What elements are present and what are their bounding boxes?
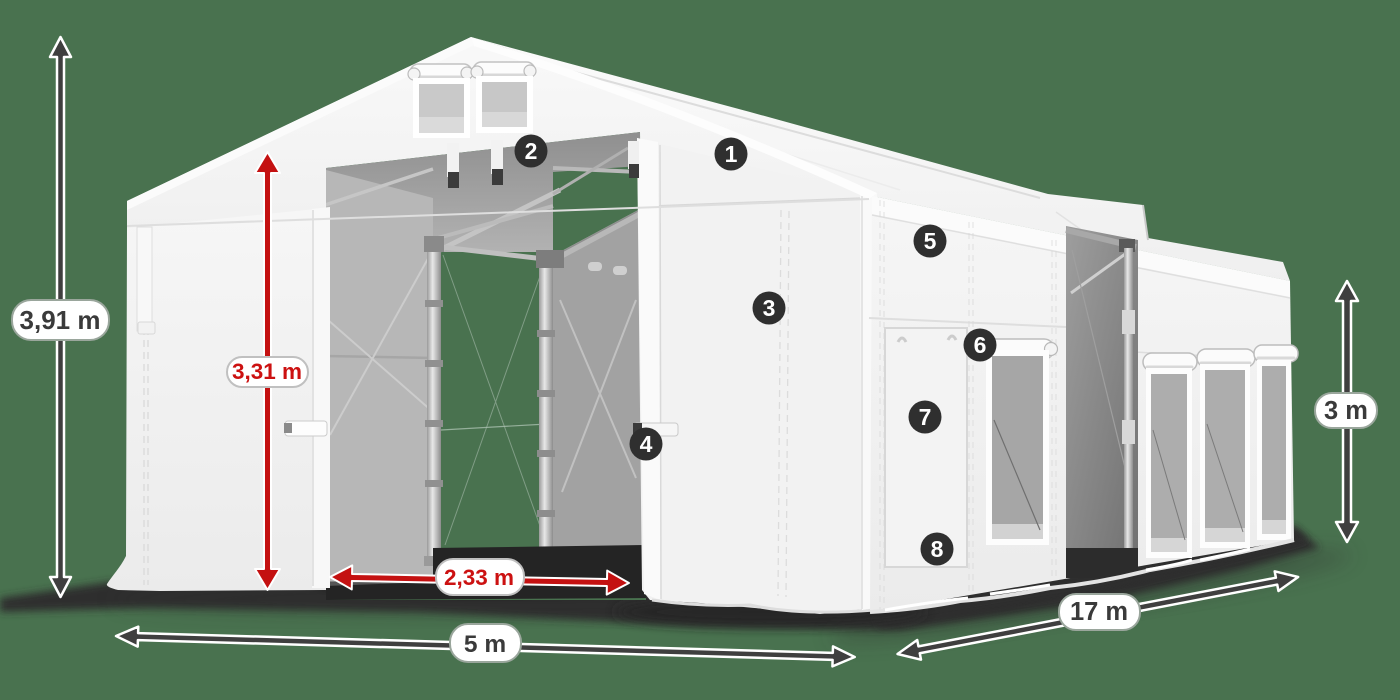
svg-text:3,91 m: 3,91 m [20,305,101,335]
svg-text:2: 2 [525,138,538,164]
svg-text:4: 4 [640,431,653,457]
svg-text:5 m: 5 m [464,631,506,658]
svg-text:1: 1 [725,141,738,167]
svg-text:8: 8 [931,536,944,562]
svg-text:5: 5 [924,228,937,254]
svg-text:3,31 m: 3,31 m [232,359,302,384]
svg-text:2,33 m: 2,33 m [444,565,514,590]
svg-text:17 m: 17 m [1070,598,1128,626]
svg-text:6: 6 [974,332,987,358]
svg-text:3: 3 [763,295,776,321]
svg-text:7: 7 [919,404,932,430]
svg-text:3 m: 3 m [1324,397,1368,425]
